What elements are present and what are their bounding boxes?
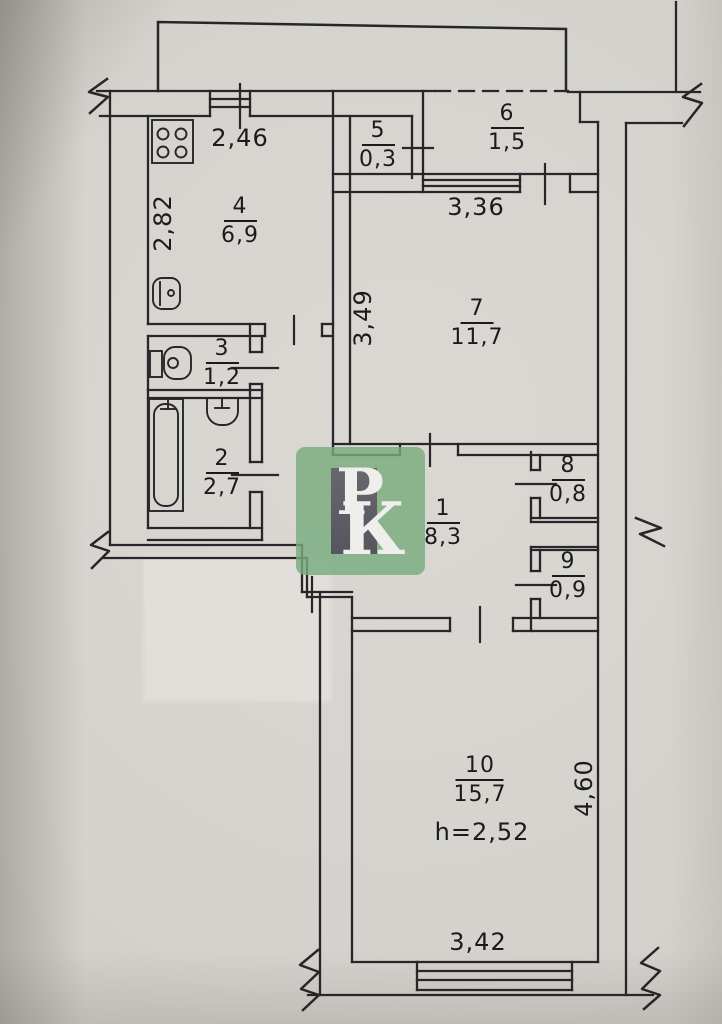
dim-room10-depth: 4,60: [570, 759, 598, 816]
upper-floor-outline: [158, 22, 566, 91]
floor-plan-photo: Р К 1 8,3 2 2,7 3 1,2 4 6,9 5 0,3 6 1,5 …: [0, 0, 722, 1024]
room-label-2: 2 2,7: [203, 448, 241, 499]
watermark-logo: Р К: [296, 447, 425, 575]
room-label-1: 1 8,3: [424, 498, 462, 549]
dim-kitchen-width: 2,46: [211, 124, 268, 152]
window-symbol-room7: [423, 174, 520, 192]
room-label-5: 5 0,3: [359, 120, 397, 171]
window-symbol-kitchen: [210, 91, 250, 116]
dim-kitchen-depth: 2,82: [149, 194, 177, 251]
room-label-4: 4 6,9: [221, 196, 259, 247]
kitchen-sink-icon: [153, 278, 180, 309]
room-label-3: 3 1,2: [203, 338, 241, 389]
watermark-letter-k: К: [340, 493, 406, 565]
bathtub-icon: [149, 399, 183, 511]
washbasin-icon: [207, 398, 238, 425]
dim-room7-depth: 3,49: [349, 289, 377, 346]
room-label-9: 9 0,9: [549, 551, 587, 602]
toilet-icon: [150, 347, 191, 379]
stove-icon: [152, 120, 193, 163]
room-label-6: 6 1,5: [488, 103, 526, 154]
ceiling-height-note: h=2,52: [435, 818, 530, 846]
dim-room7-window-width: 3,36: [447, 193, 504, 221]
room-label-7: 7 11,7: [451, 298, 504, 349]
room-label-8: 8 0,8: [549, 455, 587, 506]
window-symbol-room10: [417, 962, 572, 990]
room-label-10: 10 15,7: [454, 755, 507, 806]
dim-room10-window-width: 3,42: [449, 928, 506, 956]
